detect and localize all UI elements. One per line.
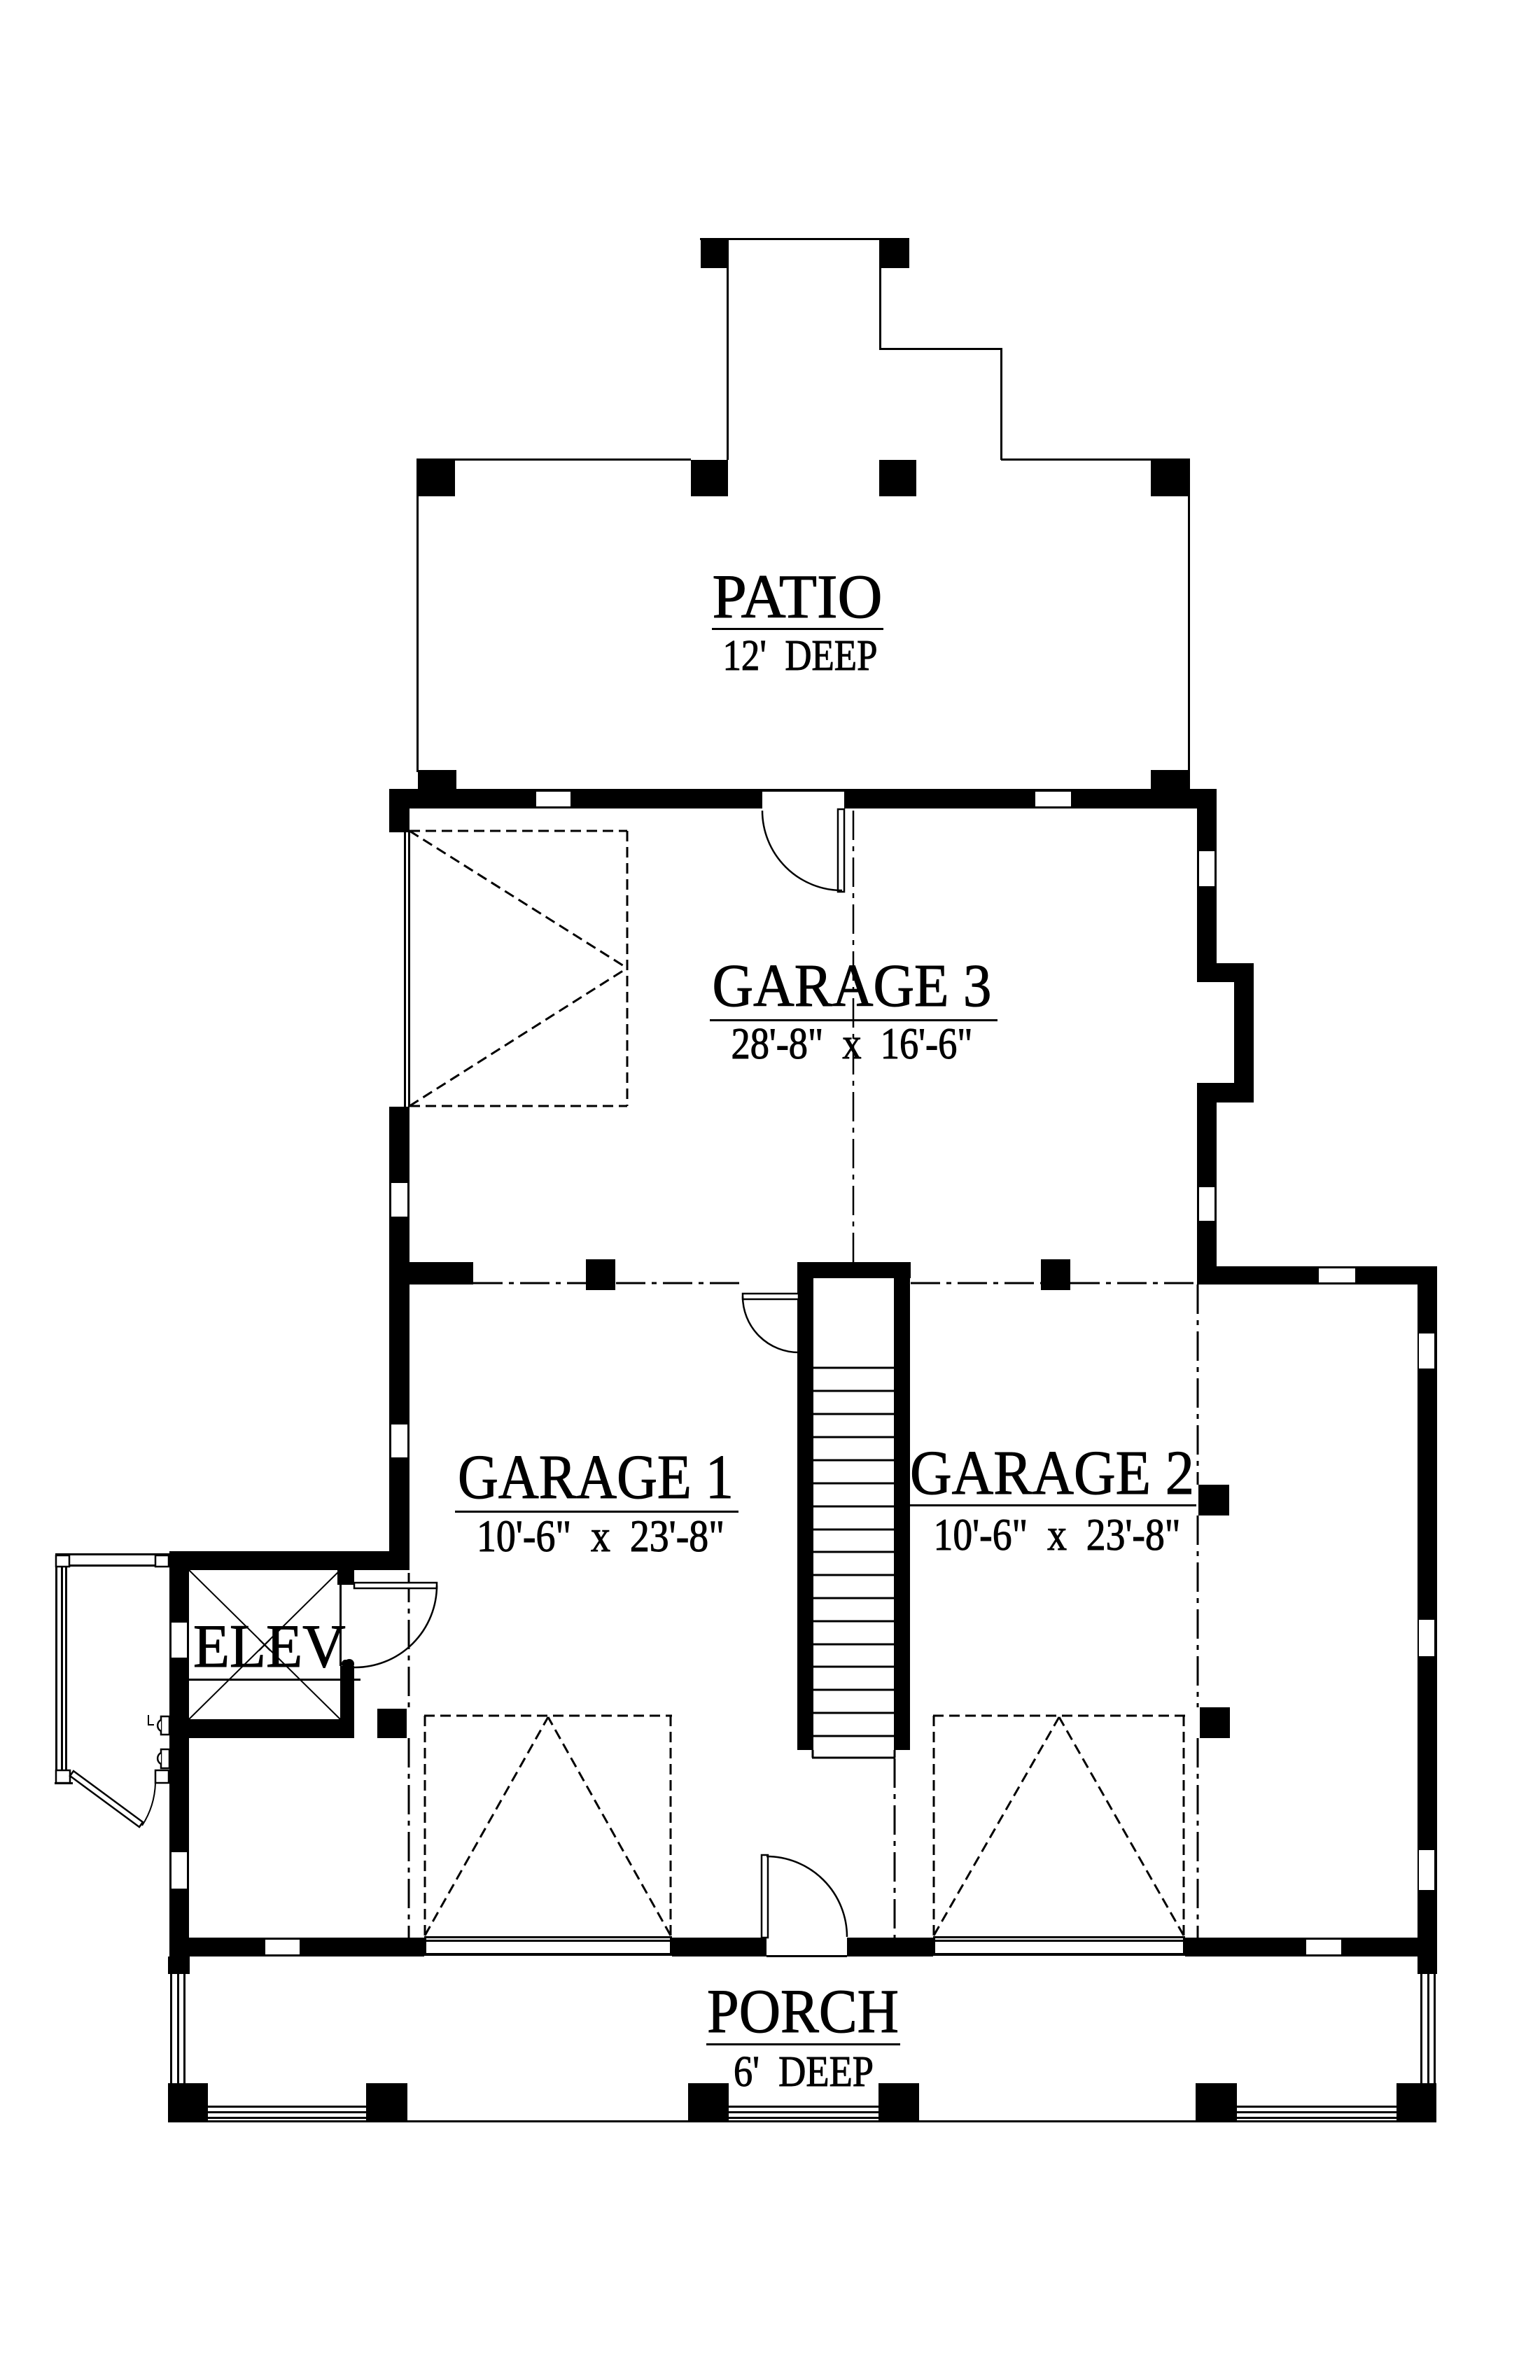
svg-text:GARAGE 2: GARAGE 2: [910, 1438, 1194, 1508]
svg-text:6' DEEP: 6' DEEP: [734, 2048, 874, 2096]
svg-text:PATIO: PATIO: [713, 563, 883, 631]
svg-text:GARAGE 3: GARAGE 3: [713, 951, 992, 1019]
svg-text:10'-6" x 23'-8": 10'-6" x 23'-8": [477, 1511, 724, 1562]
svg-text:ELEV.: ELEV.: [193, 1613, 353, 1681]
svg-text:PORCH: PORCH: [707, 1977, 899, 2046]
svg-text:28'-8" x 16'-6": 28'-8" x 16'-6": [731, 1018, 973, 1068]
svg-text:10'-6" x 23'-8": 10'-6" x 23'-8": [934, 1510, 1181, 1560]
svg-text:GARAGE 1: GARAGE 1: [458, 1443, 734, 1512]
svg-text:12' DEEP: 12' DEEP: [723, 632, 878, 680]
